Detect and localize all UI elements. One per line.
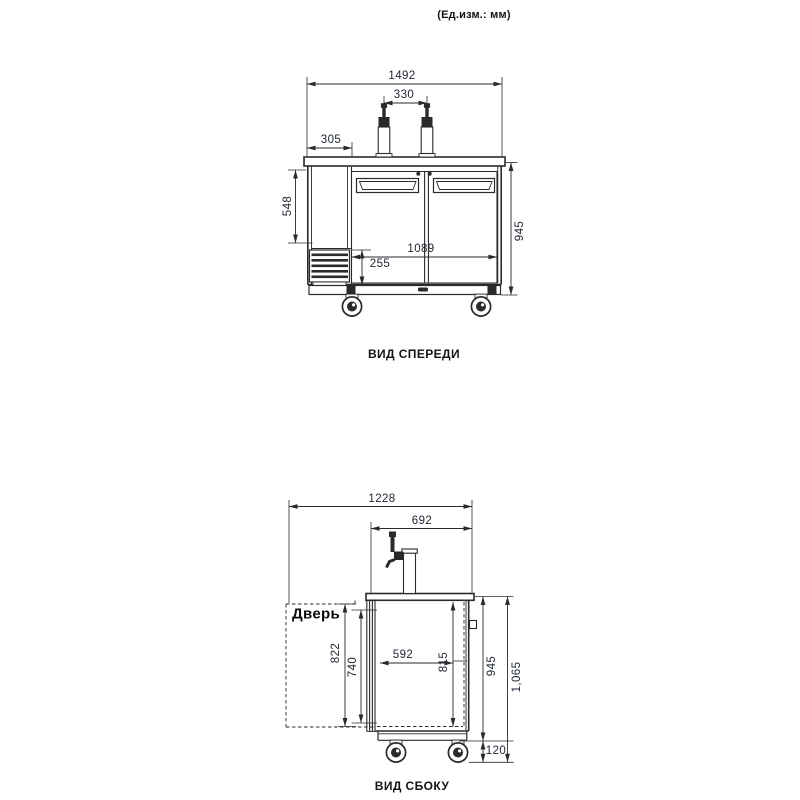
dim-side-overall-depth: 1228 [368, 493, 395, 505]
side-tap-tower-icon [387, 532, 418, 594]
side-counter-top [366, 594, 474, 601]
units-note: (Ед.изм.: мм) [437, 9, 510, 21]
front-right-tap-tower-icon [419, 103, 435, 157]
dim-front-left-panel-height: 548 [282, 196, 294, 216]
dim-side-door-opening-height: 740 [347, 657, 359, 677]
side-right-caster-icon [448, 740, 467, 762]
front-right-caster-icon [471, 294, 490, 316]
side-view-drawing [286, 500, 514, 762]
side-base-rail [378, 731, 467, 740]
dim-side-counter-depth: 692 [412, 515, 432, 527]
front-left-hinge-pin [416, 172, 420, 176]
dim-side-interior-height: 815 [438, 652, 450, 672]
front-base-rail [309, 284, 501, 295]
dim-side-interior-depth: 592 [393, 649, 413, 661]
technical-drawing-page: (Ед.изм.: мм) 1492 330 305 548 1089 255 … [0, 0, 800, 800]
front-counter-top [304, 157, 505, 166]
door-label: Дверь [292, 606, 340, 623]
dim-front-tap-spacing: 330 [394, 89, 414, 101]
front-right-hinge-pin [428, 172, 432, 176]
front-left-door-handle [357, 179, 419, 193]
dim-front-door-section-width: 1089 [407, 243, 434, 255]
dim-side-overall-height: 1,065 [511, 662, 523, 693]
dim-side-body-height: 945 [486, 656, 498, 676]
side-left-caster-icon [386, 740, 405, 762]
side-view-caption: ВИД СБОКУ [375, 779, 450, 793]
front-view-drawing [288, 77, 518, 316]
drawing-linework [0, 0, 800, 800]
dim-front-grille-height: 255 [370, 258, 390, 270]
dim-front-left-section-width: 305 [321, 134, 341, 146]
side-dimension-lines [289, 500, 514, 762]
front-view-caption: ВИД СПЕРЕДИ [368, 347, 460, 361]
dim-front-overall-width: 1492 [388, 70, 415, 82]
front-louver-grille [310, 250, 350, 288]
side-latch [470, 621, 477, 629]
dim-front-body-height: 945 [514, 221, 526, 241]
dim-side-caster-height: 120 [486, 745, 506, 757]
front-right-door-handle [434, 179, 495, 193]
side-cabinet-body [367, 600, 477, 731]
front-left-tap-tower-icon [376, 103, 392, 157]
dim-side-door-height: 822 [330, 643, 342, 663]
front-left-caster-icon [342, 294, 361, 316]
